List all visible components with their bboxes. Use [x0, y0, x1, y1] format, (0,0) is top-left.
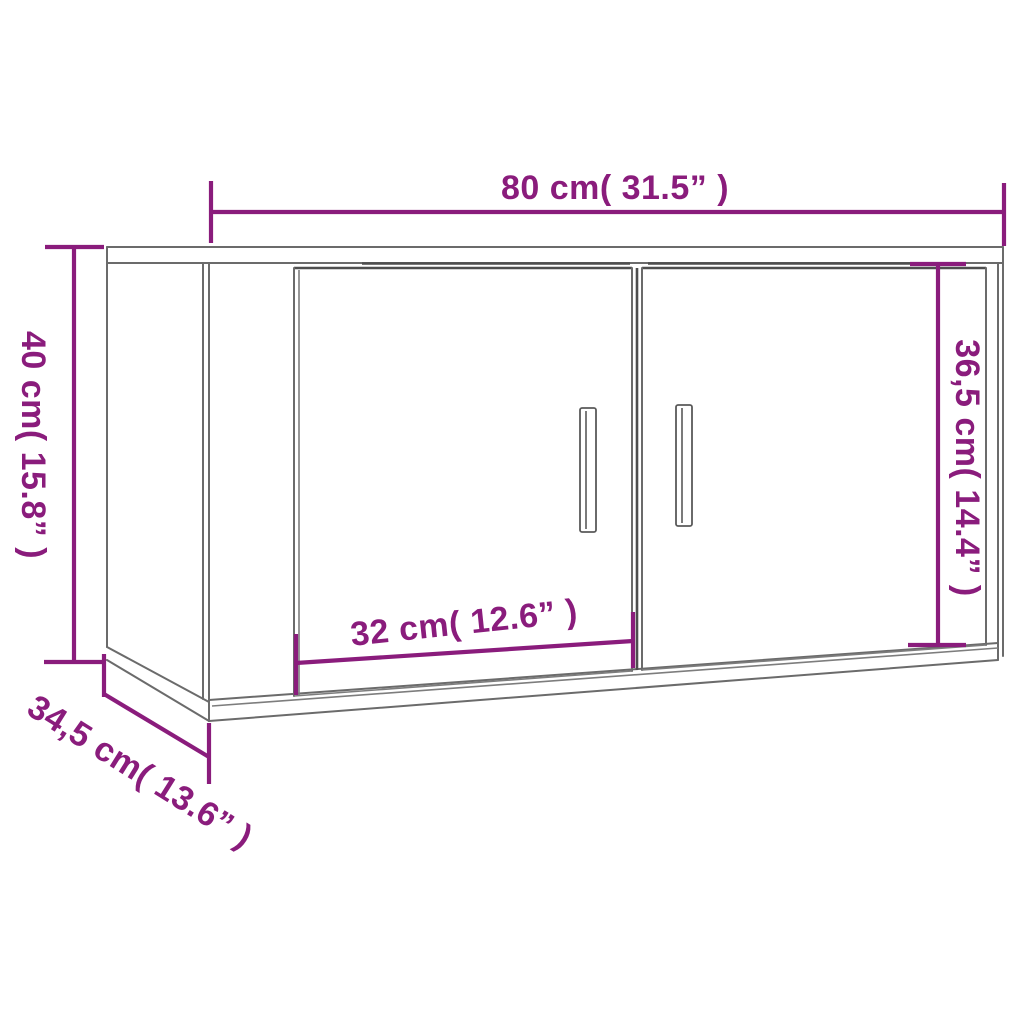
product-dimension-diagram: 80 cm( 31.5” ) 40 cm( 15.8” ) 36,5 cm( 1…	[0, 0, 1024, 1024]
right-door-handle	[676, 405, 692, 526]
diagram-canvas: 80 cm( 31.5” ) 40 cm( 15.8” ) 36,5 cm( 1…	[0, 0, 1024, 1024]
dimension-height: 40 cm( 15.8” )	[14, 247, 104, 662]
dimension-depth-label: 34,5 cm( 13.6” )	[21, 688, 259, 857]
dimension-height-label: 40 cm( 15.8” )	[14, 331, 52, 559]
right-edge	[998, 247, 1003, 660]
cabinet-drawing	[107, 247, 1003, 721]
dimension-width-label: 80 cm( 31.5” )	[501, 169, 729, 207]
top-panel-face	[107, 247, 1003, 263]
left-door-handle	[580, 408, 596, 532]
dimension-width: 80 cm( 31.5” )	[211, 169, 1004, 246]
front-face	[209, 263, 998, 700]
side-panel-face	[107, 263, 209, 702]
dimension-door-height-label: 36,5 cm( 14.4” )	[948, 339, 986, 596]
